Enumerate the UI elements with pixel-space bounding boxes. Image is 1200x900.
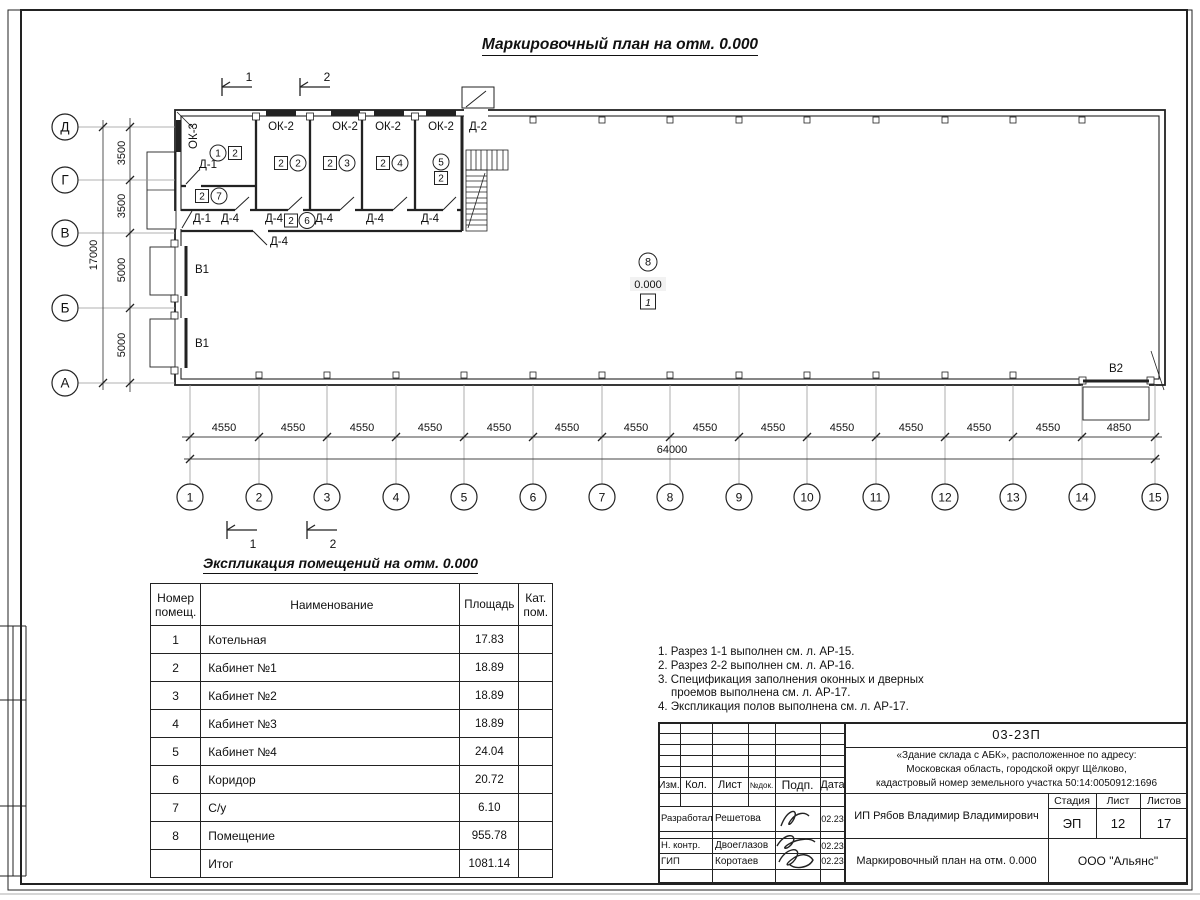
entrance-porch [147,152,176,229]
room-name-cell: Кабинет №4 [201,738,460,766]
company-name: ООО "Альянс" [1048,838,1188,884]
room-category-cell [519,738,553,766]
note-line: 3. Спецификация заполнения оконных и две… [658,674,924,688]
col-header-category: Кат. пом. [519,584,553,626]
room-name-cell: С/у [201,794,460,822]
axis-letter: А [60,376,69,391]
room-area-cell: 18.89 [460,654,519,682]
page-title-text: Маркировочный план на отм. 0.000 [482,36,758,56]
section-mark-label: 2 [324,70,331,84]
table-row: 6 Коридор 20.72 [151,766,553,794]
name-gip: Коротаев [712,853,775,869]
dim-total-label: 64000 [657,444,688,456]
table-row: 3 Кабинет №2 18.89 [151,682,553,710]
staircase [466,150,508,231]
col-header-data: Дата [820,777,845,793]
col-header-izm: Изм. [658,777,680,793]
room-area-cell: 20.72 [460,766,519,794]
dim-label: 4550 [899,422,923,434]
door-label: Д-4 [270,236,289,248]
client-name: ИП Рябов Владимир Владимирович [845,793,1048,838]
table-row: 4 Кабинет №3 18.89 [151,710,553,738]
door-label: Д-4 [421,213,440,225]
axis-number: 7 [599,491,606,505]
dim-label: 4550 [418,422,442,434]
category-tag: 2 [327,159,333,170]
window-label: ОК-2 [332,121,358,133]
room-category-cell [519,626,553,654]
explication-title: Экспликация помещений на отм. 0.000 [203,555,478,571]
project-line: «Здание склада с АБК», расположенное по … [845,749,1188,763]
room-tag-number: 1 [215,149,221,160]
dim-label: 4550 [350,422,374,434]
room-category-cell [519,710,553,738]
section-mark-label: 1 [250,537,257,551]
gate-label: В1 [195,338,209,350]
document-code: 03-23П [845,722,1188,747]
stage-label: Стадия [1048,793,1096,808]
room-name-cell: Кабинет №2 [201,682,460,710]
project-line: Московская область, городской округ Щёлк… [845,763,1188,777]
axis-letter: Д [60,120,69,135]
room-area-cell: 18.89 [460,710,519,738]
date-gip: 02.23 [820,853,845,869]
room-name-cell: Кабинет №1 [201,654,460,682]
axis-number: 9 [736,491,743,505]
col-header-list: Лист [712,777,748,793]
dim-label: 5000 [116,333,128,357]
sheet-label: Лист [1096,793,1140,808]
gate-label: В1 [195,264,209,276]
sheets-total: 17 [1140,808,1188,838]
room-tag-number: 4 [397,159,403,170]
door-label: Д-4 [221,213,240,225]
axis-letter: Г [61,173,69,188]
section-mark-label: 1 [246,70,253,84]
gate-label: В2 [1109,363,1123,375]
room-category-cell [519,822,553,850]
room-area-cell: 24.04 [460,738,519,766]
dim-label: 4550 [967,422,991,434]
category-tag: 2 [438,174,444,185]
axis-number: 8 [667,491,674,505]
room-area-cell: 6.10 [460,794,519,822]
room-number-cell: 6 [151,766,201,794]
axis-number: 2 [256,491,263,505]
table-row-total: Итог 1081.14 [151,850,553,878]
door-label: Д-4 [366,213,385,225]
axis-letter: В [60,226,69,241]
door-label: Д-4 [315,213,334,225]
axis-number: 11 [870,491,883,505]
signature-control-gip [771,830,823,872]
role-gip: ГИП [658,853,712,869]
room-name-cell: Итог [201,850,460,878]
room-area-cell: 955.78 [460,822,519,850]
window-label: ОК-2 [428,121,454,133]
dim-label: 4550 [555,422,579,434]
room-number-cell: 3 [151,682,201,710]
gate-v2 [1083,381,1149,420]
axis-number: 6 [530,491,537,505]
room-tags [196,145,658,271]
axis-bubbles-left [52,114,78,396]
room-category-cell [519,654,553,682]
col-header-ndok: №док. [748,777,775,793]
room-tag-number: 8 [645,257,651,269]
room-name-cell: Котельная [201,626,460,654]
door-label: Д-1 [193,213,211,225]
axis-number: 14 [1075,491,1089,505]
note-line: проемов выполнена см. л. АР-17. [658,687,924,701]
col-header-number: Номер помещ. [151,584,201,626]
dim-label: 4550 [212,422,236,434]
dim-label: 4550 [624,422,648,434]
category-tag: 2 [288,216,294,227]
project-line: кадастровый номер земельного участка 50:… [845,777,1188,791]
axis-letter: Б [61,301,70,316]
room-tag-number: 5 [438,158,444,169]
room-name-cell: Помещение [201,822,460,850]
section-marks [222,78,337,539]
room-category-cell [519,850,553,878]
page-title: Маркировочный план на отм. 0.000 [380,36,860,54]
stage-value: ЭП [1048,808,1096,838]
category-tag: 2 [278,159,284,170]
window-label: ОК-3 [188,123,200,149]
room-area-cell: 1081.14 [460,850,519,878]
col-header-kol: Кол. [680,777,712,793]
dim-total-label: 17000 [88,240,100,271]
drawing-notes: 1. Разрез 1-1 выполнен см. л. АР-15. 2. … [658,646,924,715]
table-row: 8 Помещение 955.78 [151,822,553,850]
elevation-mark: 0.000 1 [630,277,666,309]
dim-label: 4850 [1107,422,1131,434]
category-tag: 2 [199,192,205,203]
axis-lines [78,127,1155,484]
column-marks [171,113,1154,384]
room-number-cell: 4 [151,710,201,738]
project-description: «Здание склада с АБК», расположенное по … [845,749,1188,791]
wall-openings [172,107,1149,387]
room-area-cell: 18.89 [460,682,519,710]
section-mark-label: 2 [330,537,337,551]
note-line: 1. Разрез 1-1 выполнен см. л. АР-15. [658,646,924,660]
date-developed: 02.23 [820,806,845,831]
title-block: Изм. Кол. Лист №док. Подп. Дата Разработ… [658,722,1188,884]
window-label: ОК-2 [268,121,294,133]
axis-number: 1 [187,491,194,505]
margin-stamp-boxes [0,626,26,876]
axis-number: 10 [800,491,814,505]
category-tag: 2 [232,149,238,160]
role-control: Н. контр. [658,838,712,853]
note-line: 2. Разрез 2-2 выполнен см. л. АР-16. [658,660,924,674]
room-category-cell [519,766,553,794]
col-header-area: Площадь [460,584,519,626]
axis-number: 15 [1148,491,1162,505]
door-label: Д-2 [469,121,487,133]
dim-label: 3500 [116,194,128,218]
axis-number: 4 [393,491,400,505]
dim-label: 3500 [116,141,128,165]
dim-label: 4550 [281,422,305,434]
dim-label: 4550 [830,422,854,434]
sheets-label: Листов [1140,793,1188,808]
table-row: 5 Кабинет №4 24.04 [151,738,553,766]
room-number-cell: 8 [151,822,201,850]
axis-number: 3 [324,491,331,505]
room-category-cell [519,682,553,710]
dimension-ticks [99,123,1159,463]
room-tag-number: 7 [216,192,222,203]
room-name-cell: Коридор [201,766,460,794]
dim-label: 4550 [1036,422,1060,434]
room-number-cell: 5 [151,738,201,766]
door-label: Д-1 [199,159,217,171]
room-number-cell: 7 [151,794,201,822]
category-tag: 2 [380,159,386,170]
room-number-cell: 1 [151,626,201,654]
role-developed: Разработал [658,806,712,831]
room-tag-number: 2 [295,159,301,170]
col-header-podp: Подп. [775,777,820,793]
table-row: 7 С/у 6.10 [151,794,553,822]
room-name-cell: Кабинет №3 [201,710,460,738]
floor-type-tag: 1 [645,297,651,309]
window-label: ОК-2 [375,121,401,133]
name-control: Двоеглазов [712,838,775,853]
axis-number: 13 [1006,491,1020,505]
col-header-name: Наименование [201,584,460,626]
table-header-row: Номер помещ. Наименование Площадь Кат. п… [151,584,553,626]
dim-label: 4550 [487,422,511,434]
axis-number: 12 [938,491,952,505]
elevation-value: 0.000 [634,279,662,291]
table-row: 1 Котельная 17.83 [151,626,553,654]
dim-label: 4550 [761,422,785,434]
room-number-cell: 2 [151,654,201,682]
drawing-sheet: Д Г В Б А 1 2 3 4 5 6 7 8 9 10 11 12 13 … [0,0,1200,900]
explication-title-text: Экспликация помещений на отм. 0.000 [203,555,478,574]
table-row: 2 Кабинет №1 18.89 [151,654,553,682]
building-walls [175,110,1165,390]
room-tag-number: 3 [344,159,350,170]
sheet-number: 12 [1096,808,1140,838]
name-developed: Решетова [712,806,775,831]
room-tag-number: 6 [304,216,310,227]
date-control: 02.23 [820,838,845,853]
room-area-cell: 17.83 [460,626,519,654]
dim-label: 4550 [693,422,717,434]
axis-number: 5 [461,491,468,505]
drawing-title-cell: Маркировочный план на отм. 0.000 [845,838,1048,884]
door-label: Д-4 [265,213,284,225]
room-category-cell [519,794,553,822]
room-number-cell [151,850,201,878]
note-line: 4. Экспликация полов выполнена см. л. АР… [658,701,924,715]
dim-label: 5000 [116,258,128,282]
signature-developed [775,806,820,833]
explication-table: Номер помещ. Наименование Площадь Кат. п… [150,583,553,878]
